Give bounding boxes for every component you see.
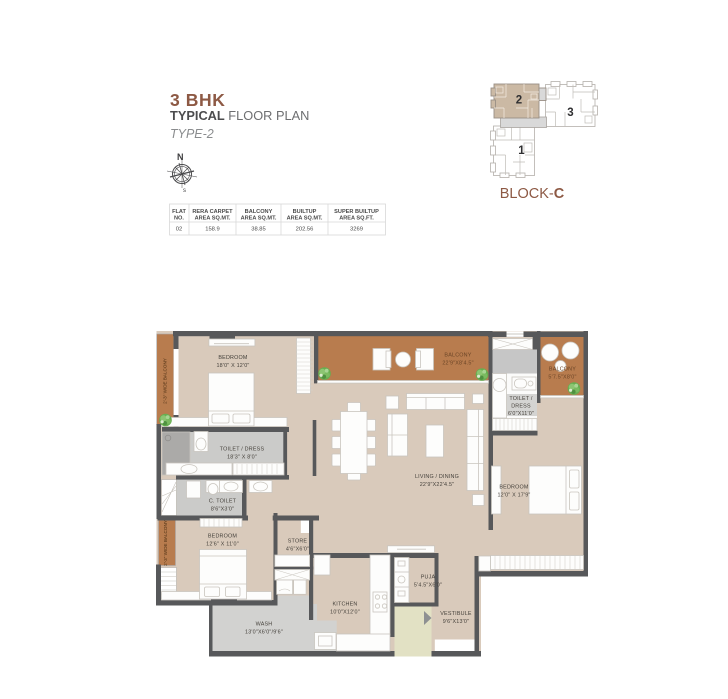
svg-text:C. TOILET: C. TOILET	[209, 499, 237, 505]
svg-text:12'0" X 17'9": 12'0" X 17'9"	[497, 493, 530, 499]
svg-text:WASH: WASH	[256, 622, 273, 628]
svg-text:PUJA: PUJA	[421, 575, 436, 581]
svg-text:BALCONY: BALCONY	[245, 209, 273, 215]
svg-text:2: 2	[516, 95, 522, 107]
svg-text:BEDROOM: BEDROOM	[218, 355, 248, 361]
svg-text:2'-3" WIDE BALCONY: 2'-3" WIDE BALCONY	[163, 358, 168, 404]
svg-text:TYPE-2: TYPE-2	[170, 127, 214, 141]
svg-text:TOILET / DRESS: TOILET / DRESS	[220, 447, 265, 453]
svg-text:1: 1	[518, 145, 525, 157]
svg-text:BALCONY: BALCONY	[444, 353, 471, 359]
svg-text:BUILTUP: BUILTUP	[293, 209, 317, 215]
svg-text:TYPICAL FLOOR PLAN: TYPICAL FLOOR PLAN	[170, 108, 309, 123]
svg-text:9'6"X13'0": 9'6"X13'0"	[443, 619, 469, 625]
svg-text:TOILET /: TOILET /	[509, 396, 533, 402]
svg-text:18'0" X 12'0": 18'0" X 12'0"	[216, 363, 249, 369]
svg-text:02: 02	[176, 227, 182, 233]
svg-text:12'6" X 11'0": 12'6" X 11'0"	[206, 542, 239, 548]
svg-text:3269: 3269	[350, 227, 363, 233]
svg-text:N: N	[177, 152, 184, 162]
svg-text:BALCONY: BALCONY	[549, 367, 576, 373]
svg-text:10'0"X12'0": 10'0"X12'0"	[330, 610, 360, 616]
svg-text:AREA SQ.MT.: AREA SQ.MT.	[195, 216, 231, 222]
svg-text:18'3" X 8'0": 18'3" X 8'0"	[227, 455, 257, 461]
svg-text:VESTIBULE: VESTIBULE	[440, 611, 472, 617]
svg-text:SUPER BUILTUP: SUPER BUILTUP	[334, 209, 379, 215]
svg-text:3: 3	[567, 107, 573, 119]
svg-text:8'6"X3'0": 8'6"X3'0"	[211, 507, 234, 513]
svg-text:158.9: 158.9	[205, 227, 220, 233]
svg-text:RERA CARPET: RERA CARPET	[192, 209, 233, 215]
svg-text:38.85: 38.85	[251, 227, 266, 233]
svg-text:BEDROOM: BEDROOM	[499, 485, 529, 491]
svg-text:STORE: STORE	[288, 539, 308, 545]
svg-text:s: s	[183, 188, 186, 194]
svg-text:DRESS: DRESS	[511, 404, 531, 410]
svg-text:3 BHK: 3 BHK	[170, 90, 226, 110]
svg-text:KITCHEN: KITCHEN	[332, 602, 357, 608]
svg-text:5'4.5"X6'0": 5'4.5"X6'0"	[414, 583, 442, 589]
svg-text:BLOCK-C: BLOCK-C	[500, 186, 565, 202]
svg-text:LIVING / DINING: LIVING / DINING	[415, 474, 459, 480]
svg-text:13'0"X6'0"/9'6": 13'0"X6'0"/9'6"	[245, 630, 283, 636]
svg-text:2'-3" WIDE BALCONY: 2'-3" WIDE BALCONY	[163, 520, 168, 566]
svg-text:FLAT: FLAT	[172, 209, 186, 215]
svg-text:AREA SQ.MT.: AREA SQ.MT.	[241, 216, 277, 222]
svg-text:22'9"X8'4.5": 22'9"X8'4.5"	[442, 361, 473, 367]
svg-text:AREA SQ.FT.: AREA SQ.FT.	[339, 216, 374, 222]
svg-text:4'6"X6'0": 4'6"X6'0"	[286, 547, 309, 553]
svg-text:202.56: 202.56	[296, 227, 314, 233]
svg-text:22'9"X22'4.5": 22'9"X22'4.5"	[420, 482, 455, 488]
svg-text:6'0"X11'0": 6'0"X11'0"	[508, 411, 534, 417]
svg-text:NO.: NO.	[174, 216, 184, 222]
svg-text:BEDROOM: BEDROOM	[208, 534, 238, 540]
svg-text:AREA SQ.MT.: AREA SQ.MT.	[287, 216, 323, 222]
svg-text:5'7.5"X8'0": 5'7.5"X8'0"	[548, 375, 576, 381]
